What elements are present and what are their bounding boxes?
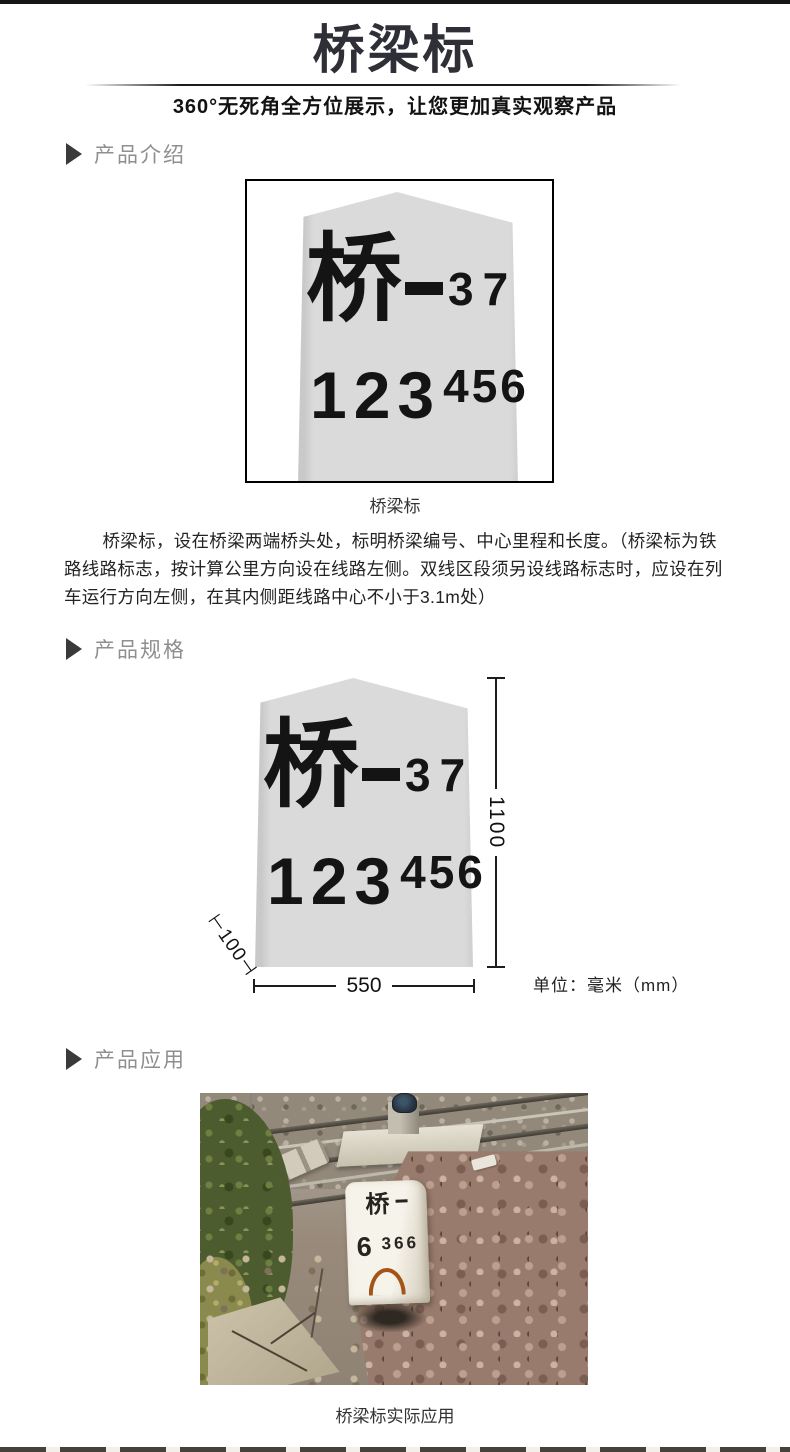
product-intro-image: 桥 37 123 456 bbox=[245, 179, 554, 483]
stone-number-main: 123 bbox=[310, 362, 441, 428]
dimension-line bbox=[495, 679, 497, 789]
photo-stone-char: 桥 bbox=[365, 1193, 390, 1218]
triangle-bullet-icon bbox=[66, 143, 82, 165]
application-photo: 桥 6 366 bbox=[200, 1093, 588, 1385]
dash-glyph bbox=[396, 1199, 408, 1202]
page-subtitle: 360°无死角全方位展示，让您更加真实观察产品 bbox=[0, 90, 790, 119]
stone-number-sup: 456 bbox=[443, 363, 529, 409]
page-title: 桥梁标 bbox=[0, 22, 790, 80]
photo-stone-text-row1: 桥 bbox=[346, 1191, 428, 1218]
stone-number-top: 37 bbox=[405, 748, 474, 802]
bottom-banner-cut bbox=[0, 1447, 790, 1452]
stone-number-sup: 456 bbox=[400, 849, 486, 895]
intro-image-caption: 桥梁标 bbox=[0, 492, 790, 517]
triangle-bullet-icon bbox=[66, 638, 82, 660]
section-label-intro: 产品介绍 bbox=[94, 139, 186, 169]
dimension-end-tick bbox=[473, 979, 475, 993]
photo-stone-number-main: 6 bbox=[357, 1233, 373, 1261]
stone-char: 桥 bbox=[306, 232, 402, 328]
spec-diagram: 桥 37 123 456 1100 550 ⊢100⊣ 单位：毫米（mm） bbox=[0, 668, 790, 1013]
dimension-line bbox=[495, 856, 497, 966]
application-photo-caption: 桥梁标实际应用 bbox=[0, 1402, 790, 1427]
width-dimension-label: 550 bbox=[336, 979, 391, 993]
stone-text-row2: 123 456 bbox=[267, 848, 486, 914]
marker-stone-photo: 桥 6 366 bbox=[345, 1179, 431, 1304]
triangle-bullet-icon bbox=[66, 1048, 82, 1070]
dash-glyph bbox=[405, 282, 443, 295]
stone-text-row1: 桥 37 bbox=[306, 232, 517, 328]
bridge-marker-drawing-spec: 桥 37 123 456 bbox=[255, 678, 473, 967]
dash-glyph bbox=[362, 768, 400, 781]
section-header-intro: 产品介绍 bbox=[66, 139, 186, 169]
intro-paragraph: 桥梁标，设在桥梁两端桥头处，标明桥梁编号、中心里程和长度。（桥梁标为铁路线路标志… bbox=[64, 527, 728, 611]
title-divider bbox=[85, 84, 681, 86]
unit-label: 单位：毫米（mm） bbox=[533, 971, 689, 996]
product-detail-page: 桥梁标 360°无死角全方位展示，让您更加真实观察产品 产品介绍 桥 37 12… bbox=[0, 0, 790, 1452]
section-label-application: 产品应用 bbox=[94, 1044, 186, 1074]
stone-char: 桥 bbox=[263, 718, 359, 814]
dimension-line bbox=[255, 985, 336, 987]
dimension-line bbox=[392, 985, 473, 987]
rust-mark bbox=[368, 1267, 406, 1295]
dimension-end-bar bbox=[487, 966, 505, 968]
signal-head bbox=[392, 1093, 417, 1113]
section-header-spec: 产品规格 bbox=[66, 634, 186, 664]
top-black-bar bbox=[0, 0, 790, 4]
photo-stone-number-sub: 366 bbox=[382, 1234, 420, 1252]
stone-number-top: 37 bbox=[448, 262, 517, 316]
bridge-marker-drawing: 桥 37 123 456 bbox=[298, 192, 518, 483]
width-dimension-line: 550 bbox=[253, 979, 475, 993]
stone-text-row1: 桥 37 bbox=[263, 718, 474, 814]
section-label-spec: 产品规格 bbox=[94, 634, 186, 664]
height-dimension-label: 1100 bbox=[484, 789, 508, 856]
stone-number-main: 123 bbox=[267, 848, 398, 914]
section-header-application: 产品应用 bbox=[66, 1044, 186, 1074]
mud-patch bbox=[355, 1303, 425, 1332]
stone-text-row2: 123 456 bbox=[310, 362, 529, 428]
height-dimension-line: 1100 bbox=[484, 677, 508, 968]
photo-stone-text-row2: 6 366 bbox=[347, 1231, 429, 1261]
